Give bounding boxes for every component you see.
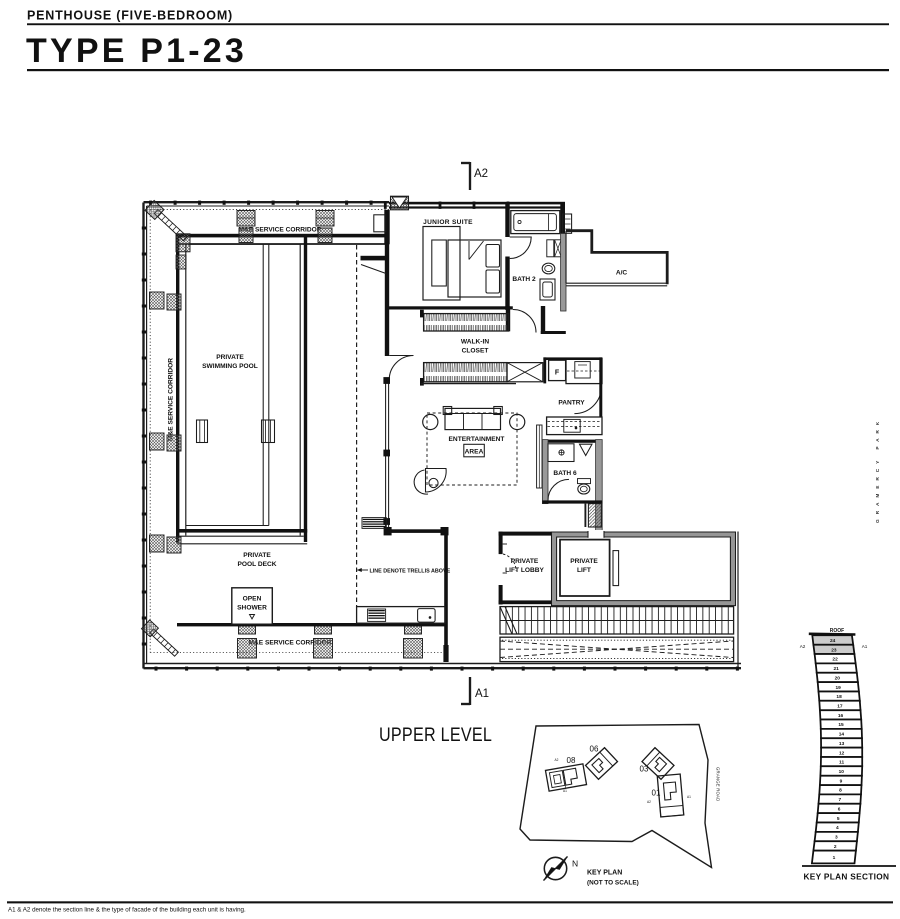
svg-text:A2: A2 [474, 168, 488, 180]
svg-text:6: 6 [838, 807, 841, 813]
svg-text:PRIVATE: PRIVATE [243, 552, 271, 559]
svg-text:PRIVATE: PRIVATE [570, 558, 598, 565]
svg-text:UPPER LEVEL: UPPER LEVEL [379, 724, 492, 746]
svg-text:22: 22 [832, 657, 838, 663]
svg-text:A1 & A2 denote the section lin: A1 & A2 denote the section line & the ty… [8, 907, 246, 914]
svg-text:GRAMERCY PARK: GRAMERCY PARK [875, 417, 881, 523]
svg-text:19: 19 [836, 685, 842, 691]
svg-text:18: 18 [836, 694, 842, 700]
svg-text:5: 5 [837, 816, 840, 822]
svg-text:23: 23 [831, 647, 837, 653]
svg-text:2: 2 [834, 844, 837, 850]
svg-text:01: 01 [652, 789, 661, 798]
svg-text:POOL DECK: POOL DECK [237, 561, 276, 568]
svg-text:11: 11 [839, 760, 844, 766]
svg-text:WALK-IN: WALK-IN [461, 339, 489, 346]
svg-text:A1: A1 [687, 795, 691, 799]
svg-text:LINE DENOTE TRELLIS ABOVE: LINE DENOTE TRELLIS ABOVE [370, 569, 451, 575]
svg-text:PRIVATE: PRIVATE [216, 354, 244, 361]
svg-text:17: 17 [837, 704, 843, 710]
svg-text:KEY PLAN SECTION: KEY PLAN SECTION [804, 872, 890, 882]
svg-text:GRANGE ROAD: GRANGE ROAD [716, 767, 721, 801]
svg-text:15: 15 [838, 722, 844, 728]
svg-text:BATH 6: BATH 6 [553, 470, 577, 477]
svg-text:06: 06 [590, 745, 599, 754]
svg-text:A2: A2 [555, 758, 559, 762]
svg-text:7: 7 [838, 797, 841, 803]
svg-text:SHOWER: SHOWER [237, 605, 267, 612]
svg-text:BATH 2: BATH 2 [512, 276, 536, 283]
svg-text:03: 03 [640, 765, 649, 774]
svg-text:A1: A1 [475, 688, 489, 700]
svg-text:A1: A1 [862, 644, 868, 649]
svg-text:10: 10 [839, 769, 845, 775]
svg-text:21: 21 [834, 666, 840, 672]
svg-text:TYPE P1-23: TYPE P1-23 [26, 32, 247, 70]
svg-text:08: 08 [567, 756, 576, 765]
svg-text:KEY PLAN: KEY PLAN [587, 870, 622, 877]
svg-text:LIFT: LIFT [577, 567, 591, 574]
svg-text:1: 1 [833, 855, 836, 861]
svg-text:9: 9 [840, 778, 843, 784]
svg-text:JUNIOR SUITE: JUNIOR SUITE [423, 219, 473, 226]
svg-text:ROOF: ROOF [830, 628, 844, 634]
svg-text:16: 16 [838, 713, 844, 719]
svg-text:F: F [555, 370, 560, 377]
svg-text:12: 12 [839, 750, 845, 756]
svg-text:OPEN: OPEN [243, 596, 262, 603]
svg-text:PANTRY: PANTRY [558, 400, 585, 407]
svg-text:ENTERTAINMENT: ENTERTAINMENT [449, 436, 505, 443]
svg-text:13: 13 [839, 741, 845, 747]
svg-text:A/C: A/C [616, 270, 628, 277]
svg-text:SWIMMING POOL: SWIMMING POOL [202, 363, 258, 370]
svg-text:AREA: AREA [465, 449, 484, 456]
svg-text:4: 4 [836, 825, 839, 831]
svg-text:(NOT TO SCALE): (NOT TO SCALE) [587, 880, 639, 887]
svg-text:M&E SERVICE CORRIDOR: M&E SERVICE CORRIDOR [168, 358, 175, 441]
svg-text:3: 3 [835, 835, 838, 841]
svg-text:24: 24 [830, 638, 836, 644]
svg-text:A2: A2 [647, 800, 651, 804]
svg-text:LIFT LOBBY: LIFT LOBBY [505, 567, 544, 574]
svg-text:A2: A2 [800, 644, 806, 649]
svg-text:N: N [572, 859, 578, 869]
svg-text:8: 8 [839, 788, 842, 794]
svg-text:20: 20 [835, 675, 841, 681]
svg-text:CLOSET: CLOSET [462, 348, 489, 355]
svg-text:PENTHOUSE (FIVE-BEDROOM): PENTHOUSE (FIVE-BEDROOM) [27, 9, 233, 23]
svg-text:A1: A1 [563, 789, 567, 793]
svg-text:14: 14 [839, 732, 845, 738]
